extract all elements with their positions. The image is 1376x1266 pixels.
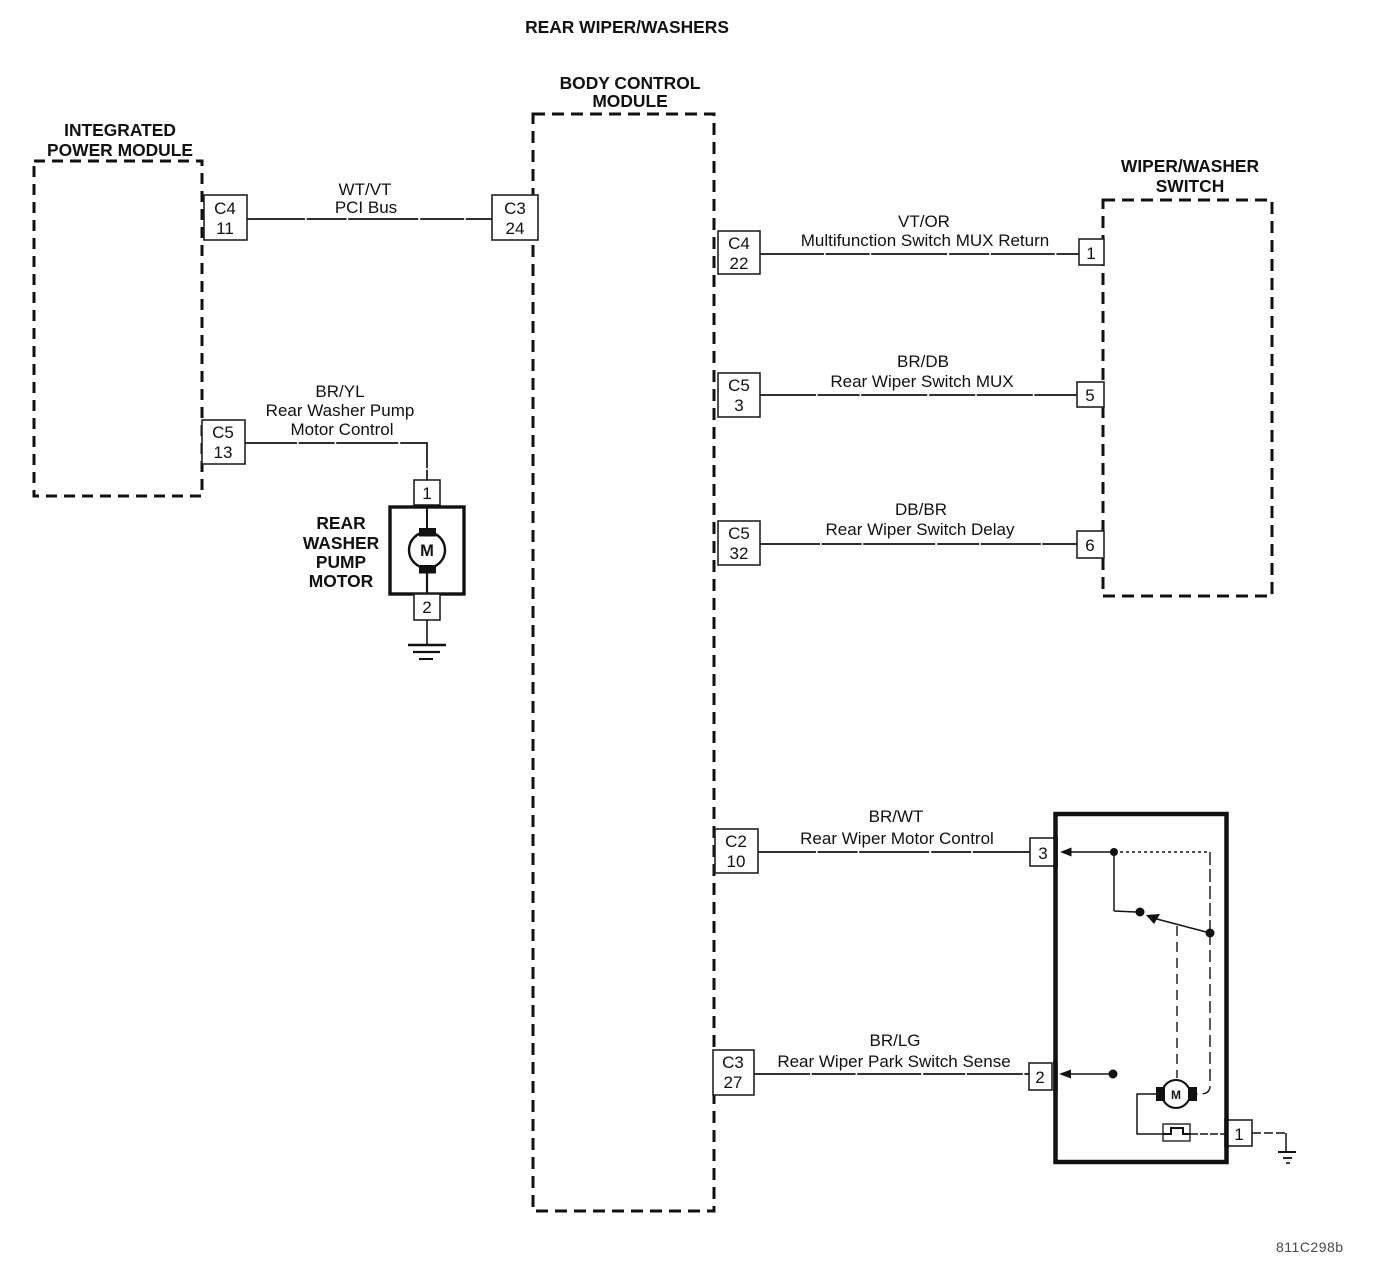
svg-text:SWITCH: SWITCH [1156,176,1225,196]
svg-text:BR/YL: BR/YL [315,382,364,401]
svg-text:PCI Bus: PCI Bus [335,198,397,217]
svg-text:13: 13 [214,443,233,462]
svg-text:MODULE: MODULE [592,91,667,111]
svg-text:27: 27 [724,1073,743,1092]
svg-text:M: M [1171,1088,1181,1102]
svg-text:22: 22 [730,254,749,273]
svg-text:POWER MODULE: POWER MODULE [47,140,193,160]
svg-text:C4: C4 [214,199,236,218]
svg-text:BR/DB: BR/DB [897,352,949,371]
svg-text:Multifunction Switch MUX Retur: Multifunction Switch MUX Return [801,231,1049,250]
svg-text:5: 5 [1085,386,1094,405]
svg-text:BODY CONTROL: BODY CONTROL [560,73,701,93]
svg-text:3: 3 [1038,844,1047,863]
svg-text:6: 6 [1085,536,1094,555]
svg-text:BR/LG: BR/LG [869,1031,920,1050]
svg-text:INTEGRATED: INTEGRATED [64,120,176,140]
svg-text:C5: C5 [728,376,750,395]
svg-text:11: 11 [216,219,234,238]
svg-text:32: 32 [730,544,749,563]
svg-text:Rear Wiper Park Switch Sense: Rear Wiper Park Switch Sense [777,1052,1010,1071]
svg-text:PUMP: PUMP [316,552,366,572]
svg-text:3: 3 [734,396,743,415]
svg-text:2: 2 [422,598,431,617]
svg-text:Rear Wiper Switch Delay: Rear Wiper Switch Delay [826,520,1015,539]
svg-text:REAR WIPER/WASHERS: REAR WIPER/WASHERS [525,17,729,37]
svg-text:24: 24 [506,219,525,238]
svg-text:10: 10 [727,852,746,871]
svg-text:1: 1 [1086,244,1095,263]
svg-text:C5: C5 [728,524,750,543]
svg-text:1: 1 [422,484,431,503]
svg-text:Rear Wiper Motor Control: Rear Wiper Motor Control [800,829,994,848]
svg-text:811C298b: 811C298b [1276,1239,1344,1255]
svg-text:MOTOR: MOTOR [309,571,374,591]
svg-text:C3: C3 [722,1053,744,1072]
svg-text:2: 2 [1035,1068,1044,1087]
svg-text:C5: C5 [212,423,234,442]
svg-text:1: 1 [1234,1125,1243,1144]
svg-text:C3: C3 [504,199,526,218]
svg-text:VT/OR: VT/OR [898,212,950,231]
svg-text:DB/BR: DB/BR [895,500,947,519]
svg-text:WT/VT: WT/VT [339,180,392,199]
svg-text:Motor Control: Motor Control [291,420,394,439]
svg-text:WASHER: WASHER [303,533,380,553]
svg-text:C2: C2 [725,832,747,851]
svg-text:Rear Wiper Switch MUX: Rear Wiper Switch MUX [830,372,1013,391]
svg-text:BR/WT: BR/WT [869,807,924,826]
svg-text:C4: C4 [728,234,750,253]
svg-text:WIPER/WASHER: WIPER/WASHER [1121,156,1260,176]
svg-text:REAR: REAR [316,513,366,533]
svg-text:M: M [420,542,434,560]
svg-text:Rear Washer Pump: Rear Washer Pump [266,401,415,420]
